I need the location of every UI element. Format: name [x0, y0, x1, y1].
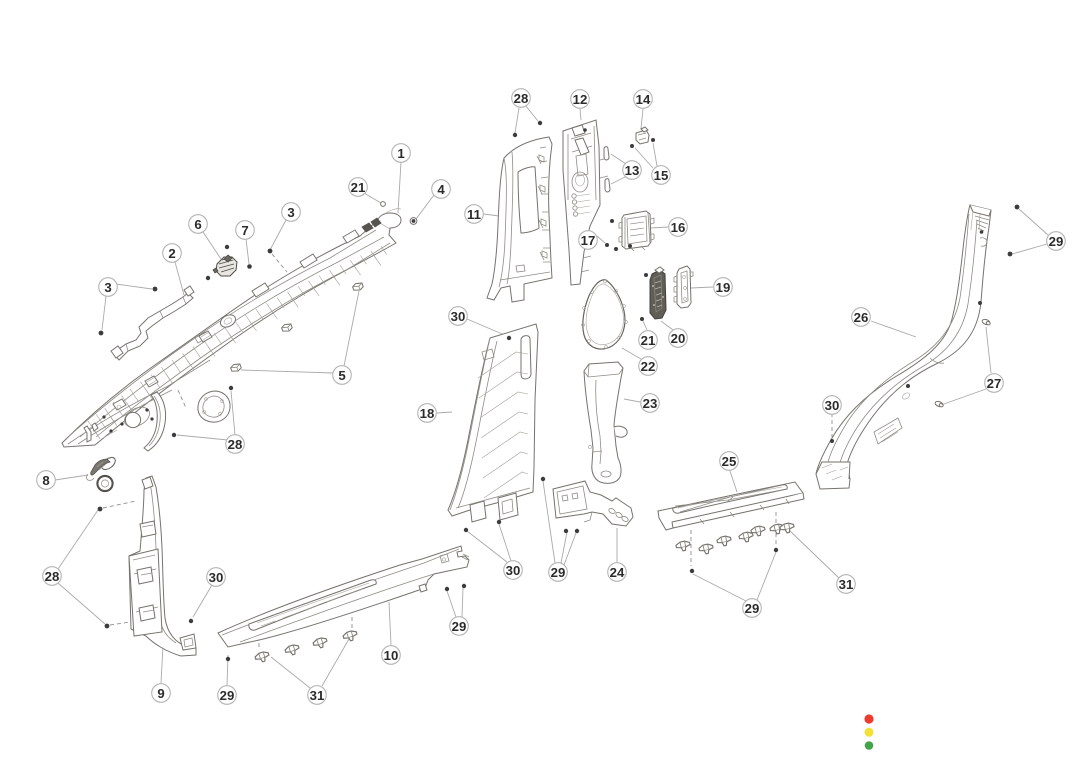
svg-text:28: 28: [514, 91, 529, 106]
svg-text:25: 25: [722, 454, 737, 469]
svg-text:26: 26: [854, 310, 869, 325]
svg-text:5: 5: [338, 368, 345, 383]
svg-text:17: 17: [581, 233, 596, 248]
svg-text:18: 18: [420, 406, 435, 421]
svg-text:10: 10: [384, 648, 399, 663]
svg-text:29: 29: [745, 601, 760, 616]
svg-text:9: 9: [157, 686, 164, 701]
svg-text:1: 1: [397, 146, 404, 161]
svg-text:12: 12: [573, 92, 588, 107]
svg-text:23: 23: [643, 396, 658, 411]
svg-text:30: 30: [506, 563, 521, 578]
svg-text:14: 14: [636, 92, 651, 107]
svg-text:29: 29: [452, 619, 467, 634]
svg-text:21: 21: [351, 180, 366, 195]
svg-text:28: 28: [228, 437, 243, 452]
svg-text:2: 2: [168, 246, 175, 261]
svg-text:30: 30: [209, 570, 224, 585]
svg-text:13: 13: [625, 163, 640, 178]
svg-text:27: 27: [987, 376, 1002, 391]
svg-text:31: 31: [310, 688, 325, 703]
svg-text:30: 30: [825, 398, 840, 413]
svg-text:31: 31: [839, 577, 854, 592]
svg-text:19: 19: [716, 280, 731, 295]
svg-text:3: 3: [104, 280, 111, 295]
svg-text:16: 16: [671, 220, 686, 235]
svg-text:29: 29: [551, 565, 566, 580]
svg-text:3: 3: [287, 205, 294, 220]
svg-text:15: 15: [654, 168, 669, 183]
svg-text:30: 30: [451, 309, 466, 324]
svg-text:8: 8: [42, 473, 49, 488]
svg-text:29: 29: [1049, 234, 1064, 249]
svg-text:21: 21: [641, 333, 656, 348]
svg-text:29: 29: [220, 688, 235, 703]
svg-text:6: 6: [194, 217, 201, 232]
svg-text:11: 11: [467, 207, 481, 222]
svg-text:22: 22: [641, 359, 656, 374]
svg-text:28: 28: [45, 569, 60, 584]
svg-text:20: 20: [671, 331, 686, 346]
svg-text:7: 7: [241, 223, 248, 238]
svg-text:24: 24: [610, 565, 625, 580]
svg-text:4: 4: [437, 182, 445, 197]
